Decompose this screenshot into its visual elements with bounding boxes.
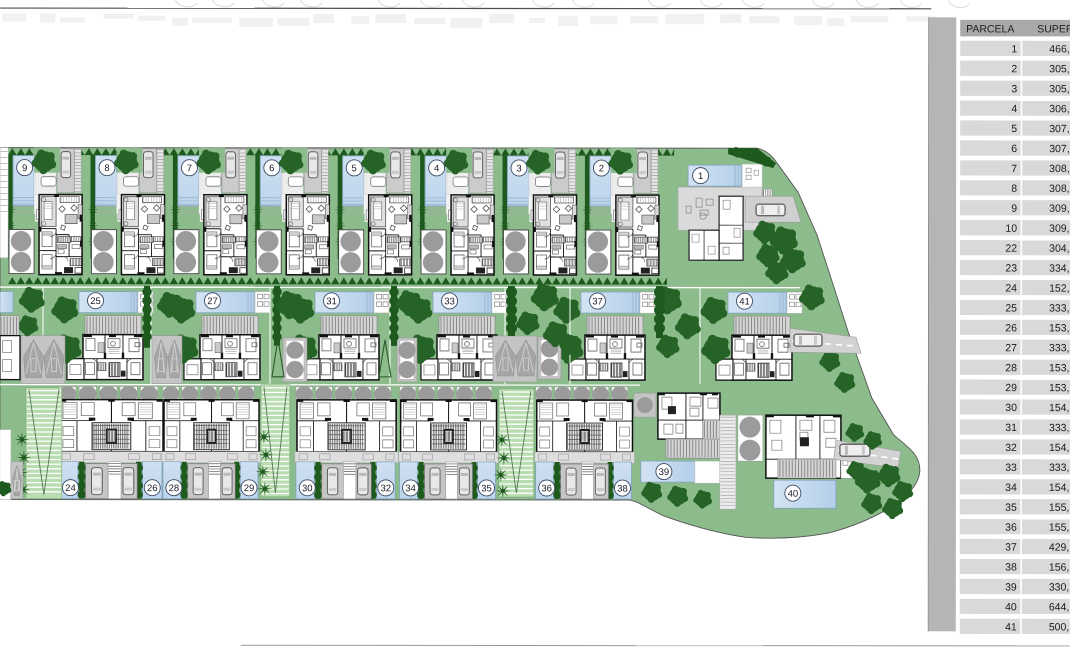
svg-text:33: 33 <box>444 296 455 307</box>
svg-text:28: 28 <box>169 483 180 494</box>
svg-text:153,: 153, <box>1049 322 1069 334</box>
svg-text:308,: 308, <box>1049 163 1069 175</box>
svg-text:309,: 309, <box>1049 203 1069 215</box>
svg-text:4: 4 <box>1011 103 1017 115</box>
svg-text:644,: 644, <box>1049 601 1069 613</box>
svg-text:PARCELA: PARCELA <box>966 23 1014 35</box>
svg-text:34: 34 <box>1005 482 1017 494</box>
svg-text:38: 38 <box>617 483 628 494</box>
svg-text:306,: 306, <box>1049 103 1069 115</box>
svg-text:500,: 500, <box>1049 621 1069 633</box>
svg-text:31: 31 <box>326 296 337 307</box>
svg-text:304,: 304, <box>1049 243 1069 255</box>
svg-text:33: 33 <box>1005 462 1017 474</box>
svg-text:305,: 305, <box>1049 83 1069 95</box>
svg-text:40: 40 <box>788 489 799 500</box>
svg-text:3: 3 <box>1011 83 1017 95</box>
svg-text:5: 5 <box>1011 123 1017 135</box>
svg-text:334,: 334, <box>1049 263 1069 275</box>
svg-text:29: 29 <box>1005 382 1017 394</box>
svg-text:31: 31 <box>1005 422 1017 434</box>
svg-text:34: 34 <box>405 483 416 494</box>
svg-text:32: 32 <box>1005 442 1017 454</box>
svg-text:305,: 305, <box>1049 63 1069 75</box>
svg-text:333,: 333, <box>1049 302 1069 314</box>
svg-text:22: 22 <box>1005 243 1017 255</box>
svg-text:333,: 333, <box>1049 342 1069 354</box>
svg-text:25: 25 <box>90 296 101 307</box>
svg-text:152,: 152, <box>1049 283 1069 295</box>
svg-text:154,: 154, <box>1049 482 1069 494</box>
svg-text:153,: 153, <box>1049 362 1069 374</box>
svg-text:25: 25 <box>1005 302 1017 314</box>
svg-text:1: 1 <box>1011 43 1017 55</box>
svg-text:24: 24 <box>1005 283 1017 295</box>
svg-text:155,: 155, <box>1049 522 1069 534</box>
svg-text:154,: 154, <box>1049 402 1069 414</box>
svg-text:9: 9 <box>1011 203 1017 215</box>
svg-text:333,: 333, <box>1049 422 1069 434</box>
svg-text:SUPERFICIE: SUPERFICIE <box>1037 23 1070 35</box>
svg-text:37: 37 <box>592 296 603 307</box>
svg-text:28: 28 <box>1005 362 1017 374</box>
svg-text:24: 24 <box>65 483 76 494</box>
svg-text:8: 8 <box>1011 183 1017 195</box>
svg-text:41: 41 <box>1005 621 1017 633</box>
svg-text:3: 3 <box>516 163 521 174</box>
svg-text:156,: 156, <box>1049 562 1069 574</box>
svg-text:36: 36 <box>1005 522 1017 534</box>
svg-text:38: 38 <box>1005 562 1017 574</box>
svg-text:10: 10 <box>1005 223 1017 235</box>
svg-text:41: 41 <box>739 297 750 308</box>
svg-text:330,: 330, <box>1049 581 1069 593</box>
svg-text:466,: 466, <box>1049 43 1069 55</box>
svg-text:23: 23 <box>1005 263 1017 275</box>
svg-text:39: 39 <box>659 467 670 478</box>
svg-text:2: 2 <box>599 163 604 174</box>
svg-text:26: 26 <box>1005 322 1017 334</box>
svg-text:307,: 307, <box>1049 123 1069 135</box>
svg-text:40: 40 <box>1005 601 1017 613</box>
svg-text:39: 39 <box>1005 581 1017 593</box>
svg-text:37: 37 <box>1005 542 1017 554</box>
svg-text:8: 8 <box>104 163 109 174</box>
svg-text:35: 35 <box>481 483 492 494</box>
svg-text:154,: 154, <box>1049 442 1069 454</box>
svg-text:26: 26 <box>147 483 158 494</box>
svg-text:30: 30 <box>302 483 313 494</box>
svg-text:27: 27 <box>1005 342 1017 354</box>
svg-text:429,: 429, <box>1049 542 1069 554</box>
svg-text:309,: 309, <box>1049 223 1069 235</box>
svg-text:36: 36 <box>541 483 552 494</box>
svg-text:7: 7 <box>187 163 192 174</box>
svg-text:155,: 155, <box>1049 502 1069 514</box>
svg-text:30: 30 <box>1005 402 1017 414</box>
svg-text:4: 4 <box>434 163 439 174</box>
svg-text:333,: 333, <box>1049 462 1069 474</box>
svg-text:153,: 153, <box>1049 382 1069 394</box>
svg-text:35: 35 <box>1005 502 1017 514</box>
svg-text:29: 29 <box>244 483 255 494</box>
svg-text:6: 6 <box>1011 143 1017 155</box>
svg-text:6: 6 <box>269 163 274 174</box>
svg-text:5: 5 <box>352 163 357 174</box>
svg-text:27: 27 <box>207 296 218 307</box>
svg-text:307,: 307, <box>1049 143 1069 155</box>
svg-text:7: 7 <box>1011 163 1017 175</box>
svg-text:9: 9 <box>22 163 27 174</box>
svg-text:2: 2 <box>1011 63 1017 75</box>
svg-text:1: 1 <box>698 171 703 182</box>
svg-text:32: 32 <box>380 483 391 494</box>
svg-text:308,: 308, <box>1049 183 1069 195</box>
